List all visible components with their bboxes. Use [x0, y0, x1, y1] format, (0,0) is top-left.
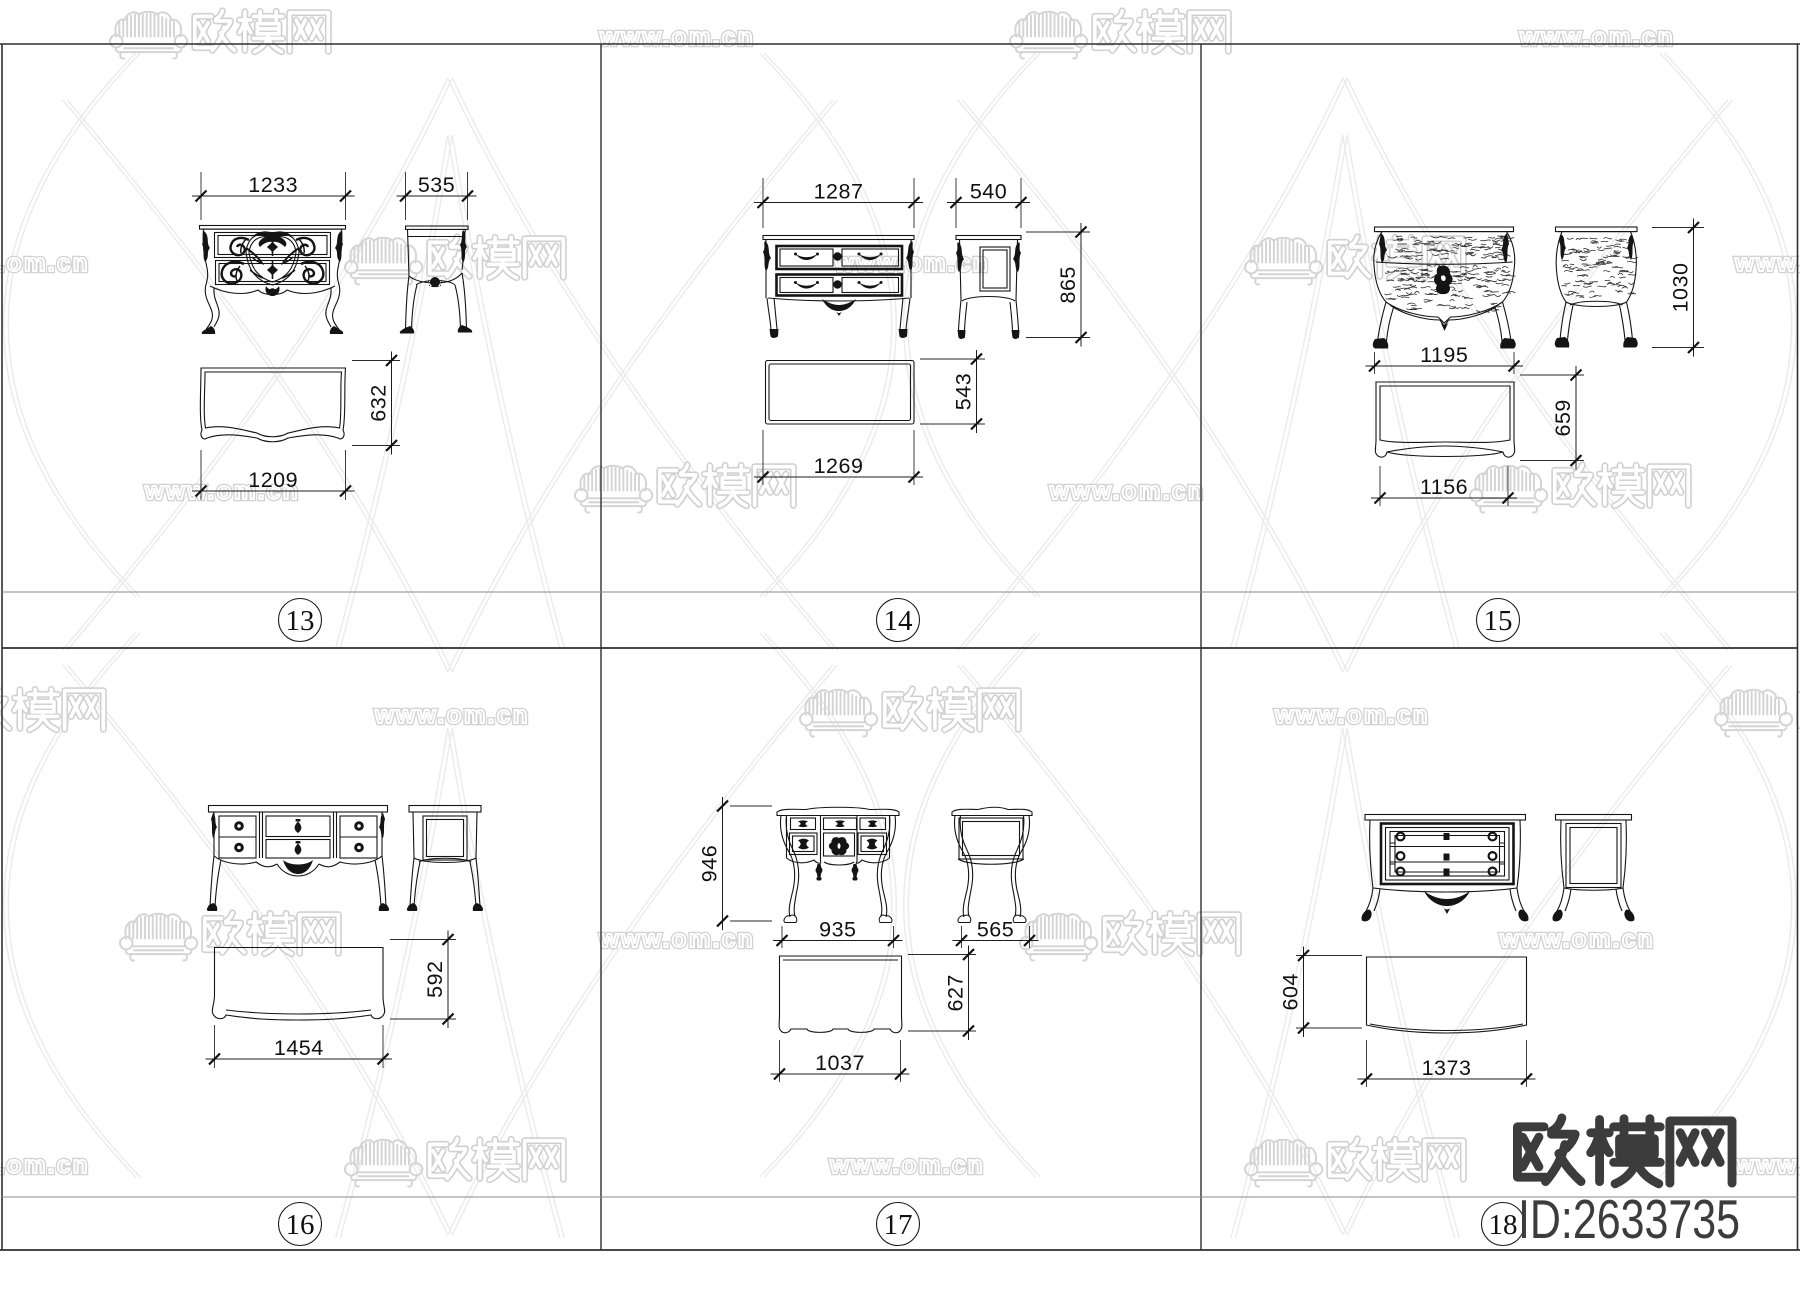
svg-text:604: 604 [1279, 973, 1303, 1010]
svg-text:627: 627 [944, 974, 968, 1011]
svg-text:540: 540 [970, 180, 1007, 204]
svg-text:659: 659 [1551, 399, 1575, 436]
svg-text:www.om.cn: www.om.cn [1519, 24, 1675, 51]
svg-text:www.om.cn: www.om.cn [1049, 478, 1205, 505]
svg-text:565: 565 [977, 918, 1014, 942]
svg-text:935: 935 [819, 918, 856, 942]
svg-text:www.om.cn: www.om.cn [374, 702, 530, 729]
svg-text:16: 16 [286, 1209, 315, 1241]
svg-text:13: 13 [286, 605, 315, 637]
svg-text:1037: 1037 [815, 1051, 865, 1075]
svg-text:1030: 1030 [1669, 263, 1693, 313]
svg-text:1156: 1156 [1420, 475, 1468, 499]
svg-text:1195: 1195 [1420, 343, 1468, 367]
svg-text:www.om.cn: www.om.cn [599, 24, 755, 51]
svg-text:592: 592 [423, 961, 447, 998]
svg-text:946: 946 [698, 845, 722, 882]
svg-text:www.om.cn: www.om.cn [0, 250, 90, 277]
svg-text:535: 535 [418, 173, 455, 197]
svg-text:www.om.cn: www.om.cn [1274, 702, 1430, 729]
svg-text:1269: 1269 [814, 454, 864, 478]
svg-text:632: 632 [367, 384, 391, 421]
svg-text:www.om.cn: www.om.cn [1734, 1152, 1800, 1179]
svg-text:www.om.cn: www.om.cn [1734, 250, 1800, 277]
svg-text:18: 18 [1489, 1209, 1518, 1241]
svg-text:1287: 1287 [814, 180, 864, 204]
svg-text:www.om.cn: www.om.cn [1499, 926, 1655, 953]
svg-text:543: 543 [952, 373, 976, 410]
svg-text:15: 15 [1484, 605, 1513, 637]
svg-text:865: 865 [1056, 266, 1080, 303]
svg-text:14: 14 [884, 605, 914, 637]
svg-text:17: 17 [884, 1209, 913, 1241]
svg-text:www.om.cn: www.om.cn [829, 1152, 985, 1179]
svg-text:1209: 1209 [248, 468, 298, 492]
svg-text:1454: 1454 [274, 1036, 324, 1060]
svg-text:www.om.cn: www.om.cn [0, 1152, 90, 1179]
svg-text:ID:2633735: ID:2633735 [1518, 1188, 1740, 1250]
svg-text:1233: 1233 [248, 173, 298, 197]
svg-text:1373: 1373 [1422, 1056, 1472, 1080]
svg-text:www.om.cn: www.om.cn [599, 926, 755, 953]
